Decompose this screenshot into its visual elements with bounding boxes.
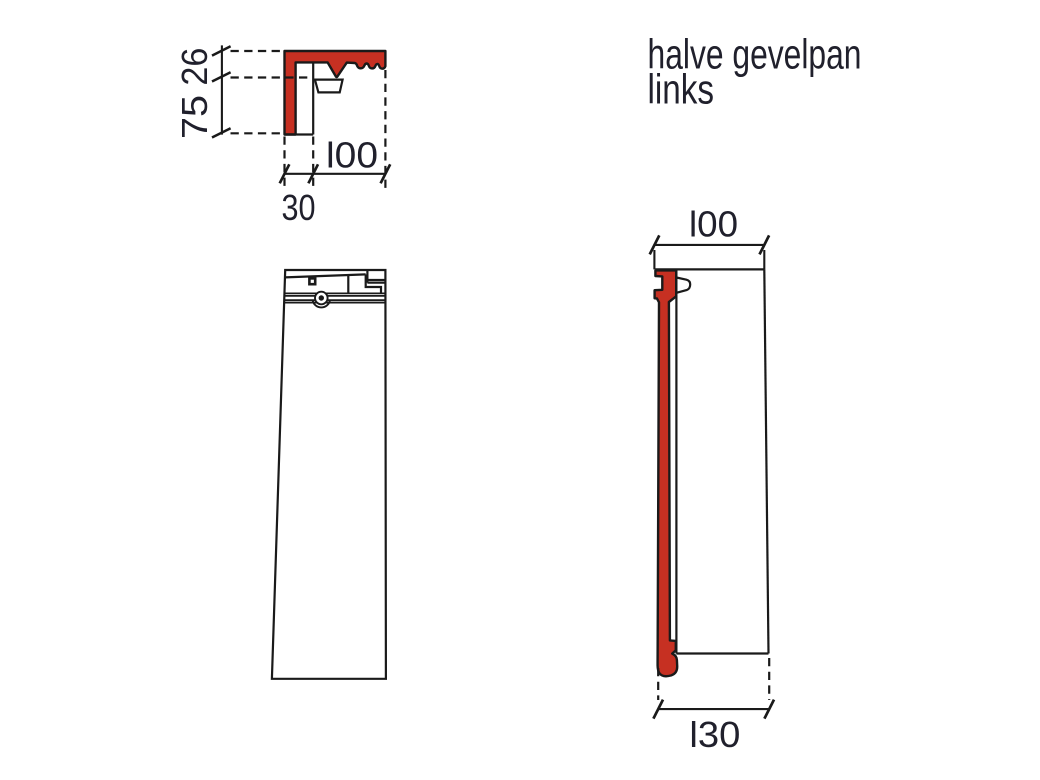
svg-text:75: 75 [174, 95, 215, 139]
svg-text:l00: l00 [326, 135, 378, 176]
svg-text:links: links [648, 66, 715, 113]
svg-text:26: 26 [174, 48, 215, 86]
svg-text:30: 30 [282, 187, 316, 228]
svg-text:l00: l00 [689, 204, 738, 245]
svg-text:l30: l30 [689, 714, 740, 755]
